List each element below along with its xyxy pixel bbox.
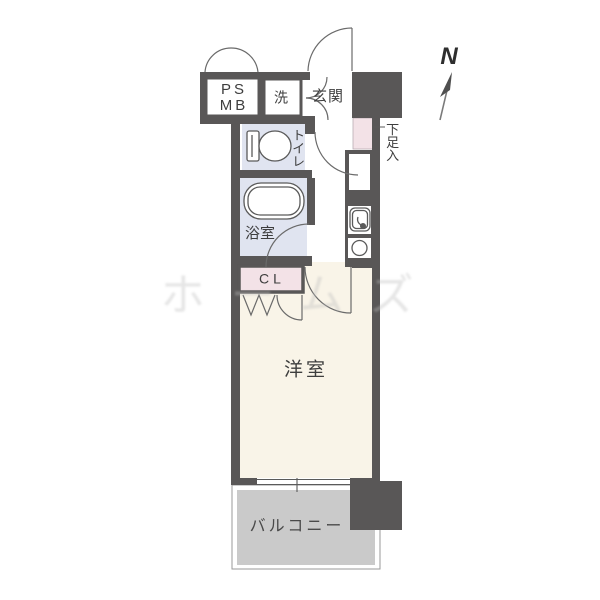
shoe-cabinet-box <box>353 118 374 149</box>
floor-plan: ホームズ PS MB 洗 玄関 下足入 トイレ 浴室 CL 洋室 バルコニー N <box>0 0 600 600</box>
western-room-label: 洋室 <box>284 361 328 382</box>
meter-box-door-right-arc <box>231 48 258 72</box>
north-arrow <box>440 72 452 120</box>
wall-bottom-left <box>231 478 257 485</box>
closet-label: CL <box>259 271 285 286</box>
refrigerator-space-box <box>347 152 372 192</box>
wall-block-top-right <box>352 72 402 118</box>
bathroom-label: 浴室 <box>245 226 275 243</box>
balcony-label: バルコニー <box>250 518 345 536</box>
toilet-tank-icon <box>247 131 259 161</box>
watermark-text: ホームズ <box>161 259 440 323</box>
entrance-label: 玄関 <box>312 89 344 106</box>
toilet-bowl-icon <box>259 131 291 161</box>
wall-kitchen-divider <box>345 193 373 203</box>
psmb-label-line2: MB <box>220 98 249 115</box>
toilet-label: トイレ <box>290 129 304 168</box>
meter-box-door-left-arc <box>205 48 231 72</box>
shoe-cabinet-label: 下足入 <box>384 123 398 162</box>
north-label: N <box>440 44 457 70</box>
wall-bath-right <box>307 178 315 225</box>
wall-genkan-toilet <box>305 116 315 134</box>
bathtub-icon <box>244 183 304 219</box>
front-door-arc <box>308 28 352 71</box>
laundry-label: 洗 <box>274 90 288 105</box>
wall-toilet-bath <box>240 170 312 178</box>
wall-block-bottom-right <box>350 481 402 530</box>
